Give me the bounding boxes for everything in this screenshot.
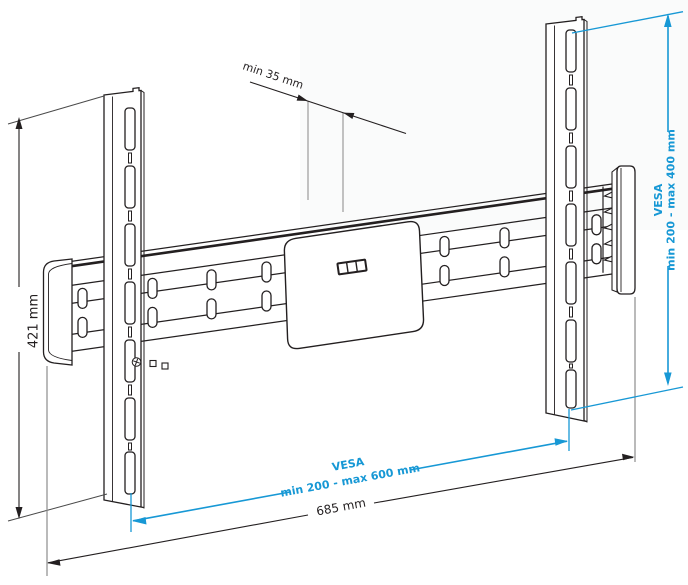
screw-icon [132,358,141,367]
center-cover-plate [284,222,423,349]
vesa-vertical-range: min 200 - max 400 mm [664,129,677,271]
vesa-vertical-label: VESA [652,183,665,216]
wall-mount-dimension-drawing: min 35 mm 421 mm 685 mm VESA min 200 - m… [0,0,688,585]
rail-left-end-cap [44,259,73,365]
right-bracket [546,17,587,423]
bracket-height-label: 421 mm [27,294,42,348]
diagram-canvas: min 35 mm 421 mm 685 mm VESA min 200 - m… [0,0,688,585]
